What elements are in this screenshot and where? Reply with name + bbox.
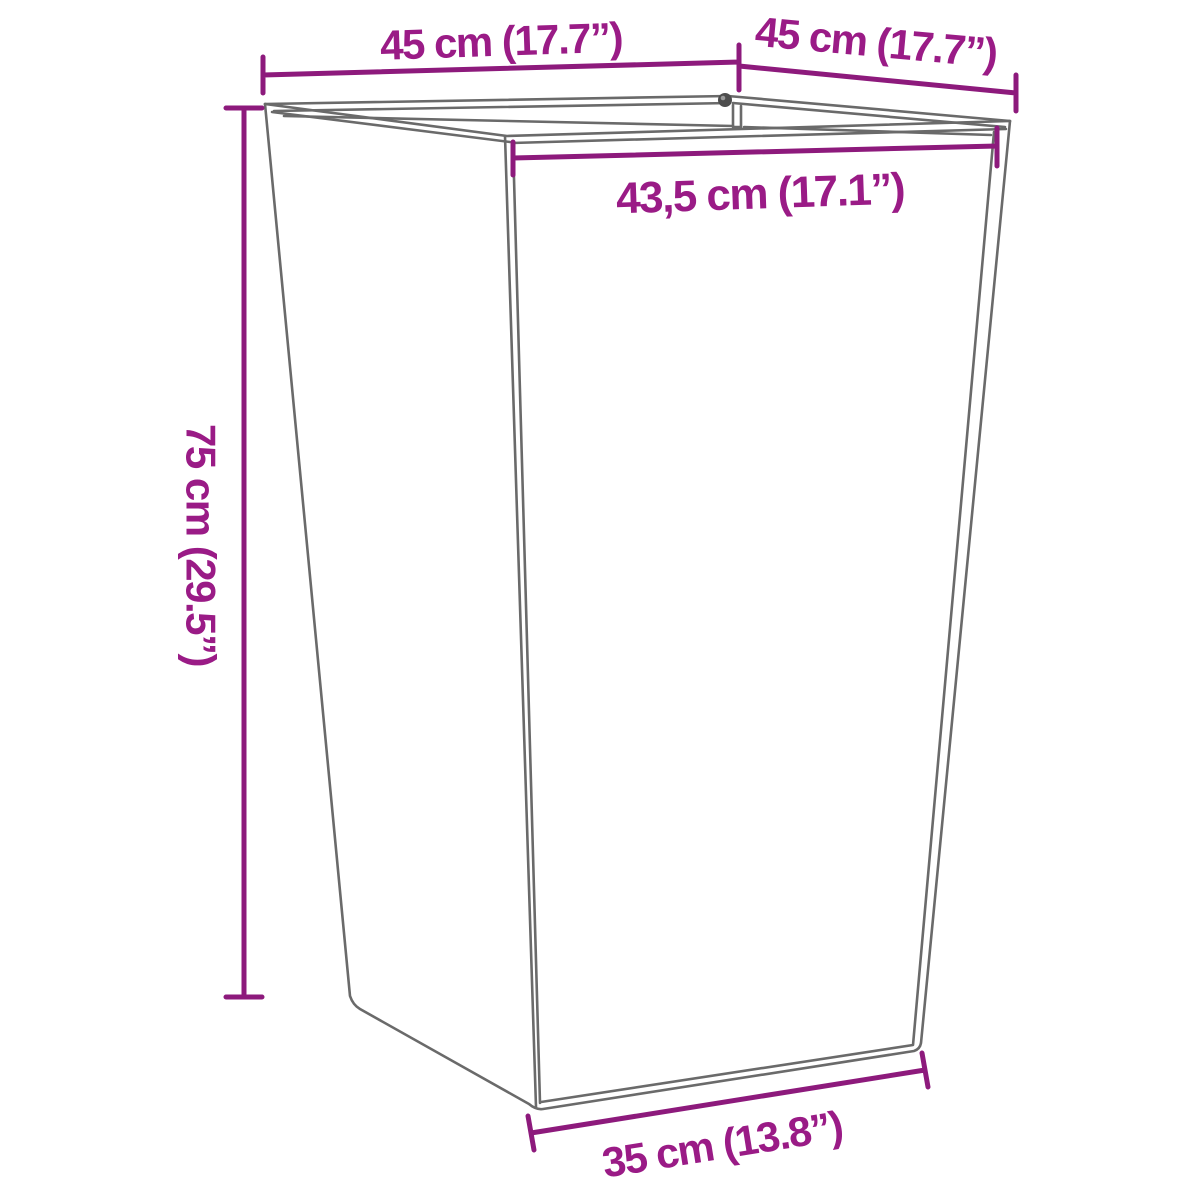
front-corner-seam-outer xyxy=(505,136,536,1107)
rim-flange-back-right xyxy=(733,103,1005,127)
dimension-labels: 45 cm (17.7”) 45 cm (17.7”) 43,5 cm (17.… xyxy=(177,8,998,1187)
rim-flange-back-left xyxy=(274,103,730,111)
back-corner-seam xyxy=(733,105,741,127)
label-inner-top-width: 43,5 cm (17.1”) xyxy=(615,164,905,223)
diagram-canvas: 45 cm (17.7”) 45 cm (17.7”) 43,5 cm (17.… xyxy=(0,0,1200,1200)
rim-flange-front-right xyxy=(512,129,1006,143)
screw-head xyxy=(718,93,732,107)
rim-flange-front-left xyxy=(272,112,510,142)
planter-drawing xyxy=(265,96,1010,1109)
screw-icon xyxy=(718,93,732,107)
screw-highlight xyxy=(721,96,726,101)
front-corner-seam-inner xyxy=(513,143,540,1103)
label-top-left-width: 45 cm (17.7”) xyxy=(379,13,622,68)
bottom-right-inner-edge xyxy=(541,132,994,1102)
planter-dimension-diagram: 45 cm (17.7”) 45 cm (17.7”) 43,5 cm (17.… xyxy=(0,0,1200,1200)
planter-outline xyxy=(265,104,1010,1109)
label-top-right-width: 45 cm (17.7”) xyxy=(753,8,998,77)
dim-line-height xyxy=(226,108,262,997)
label-height: 75 cm (29.5”) xyxy=(177,424,224,666)
